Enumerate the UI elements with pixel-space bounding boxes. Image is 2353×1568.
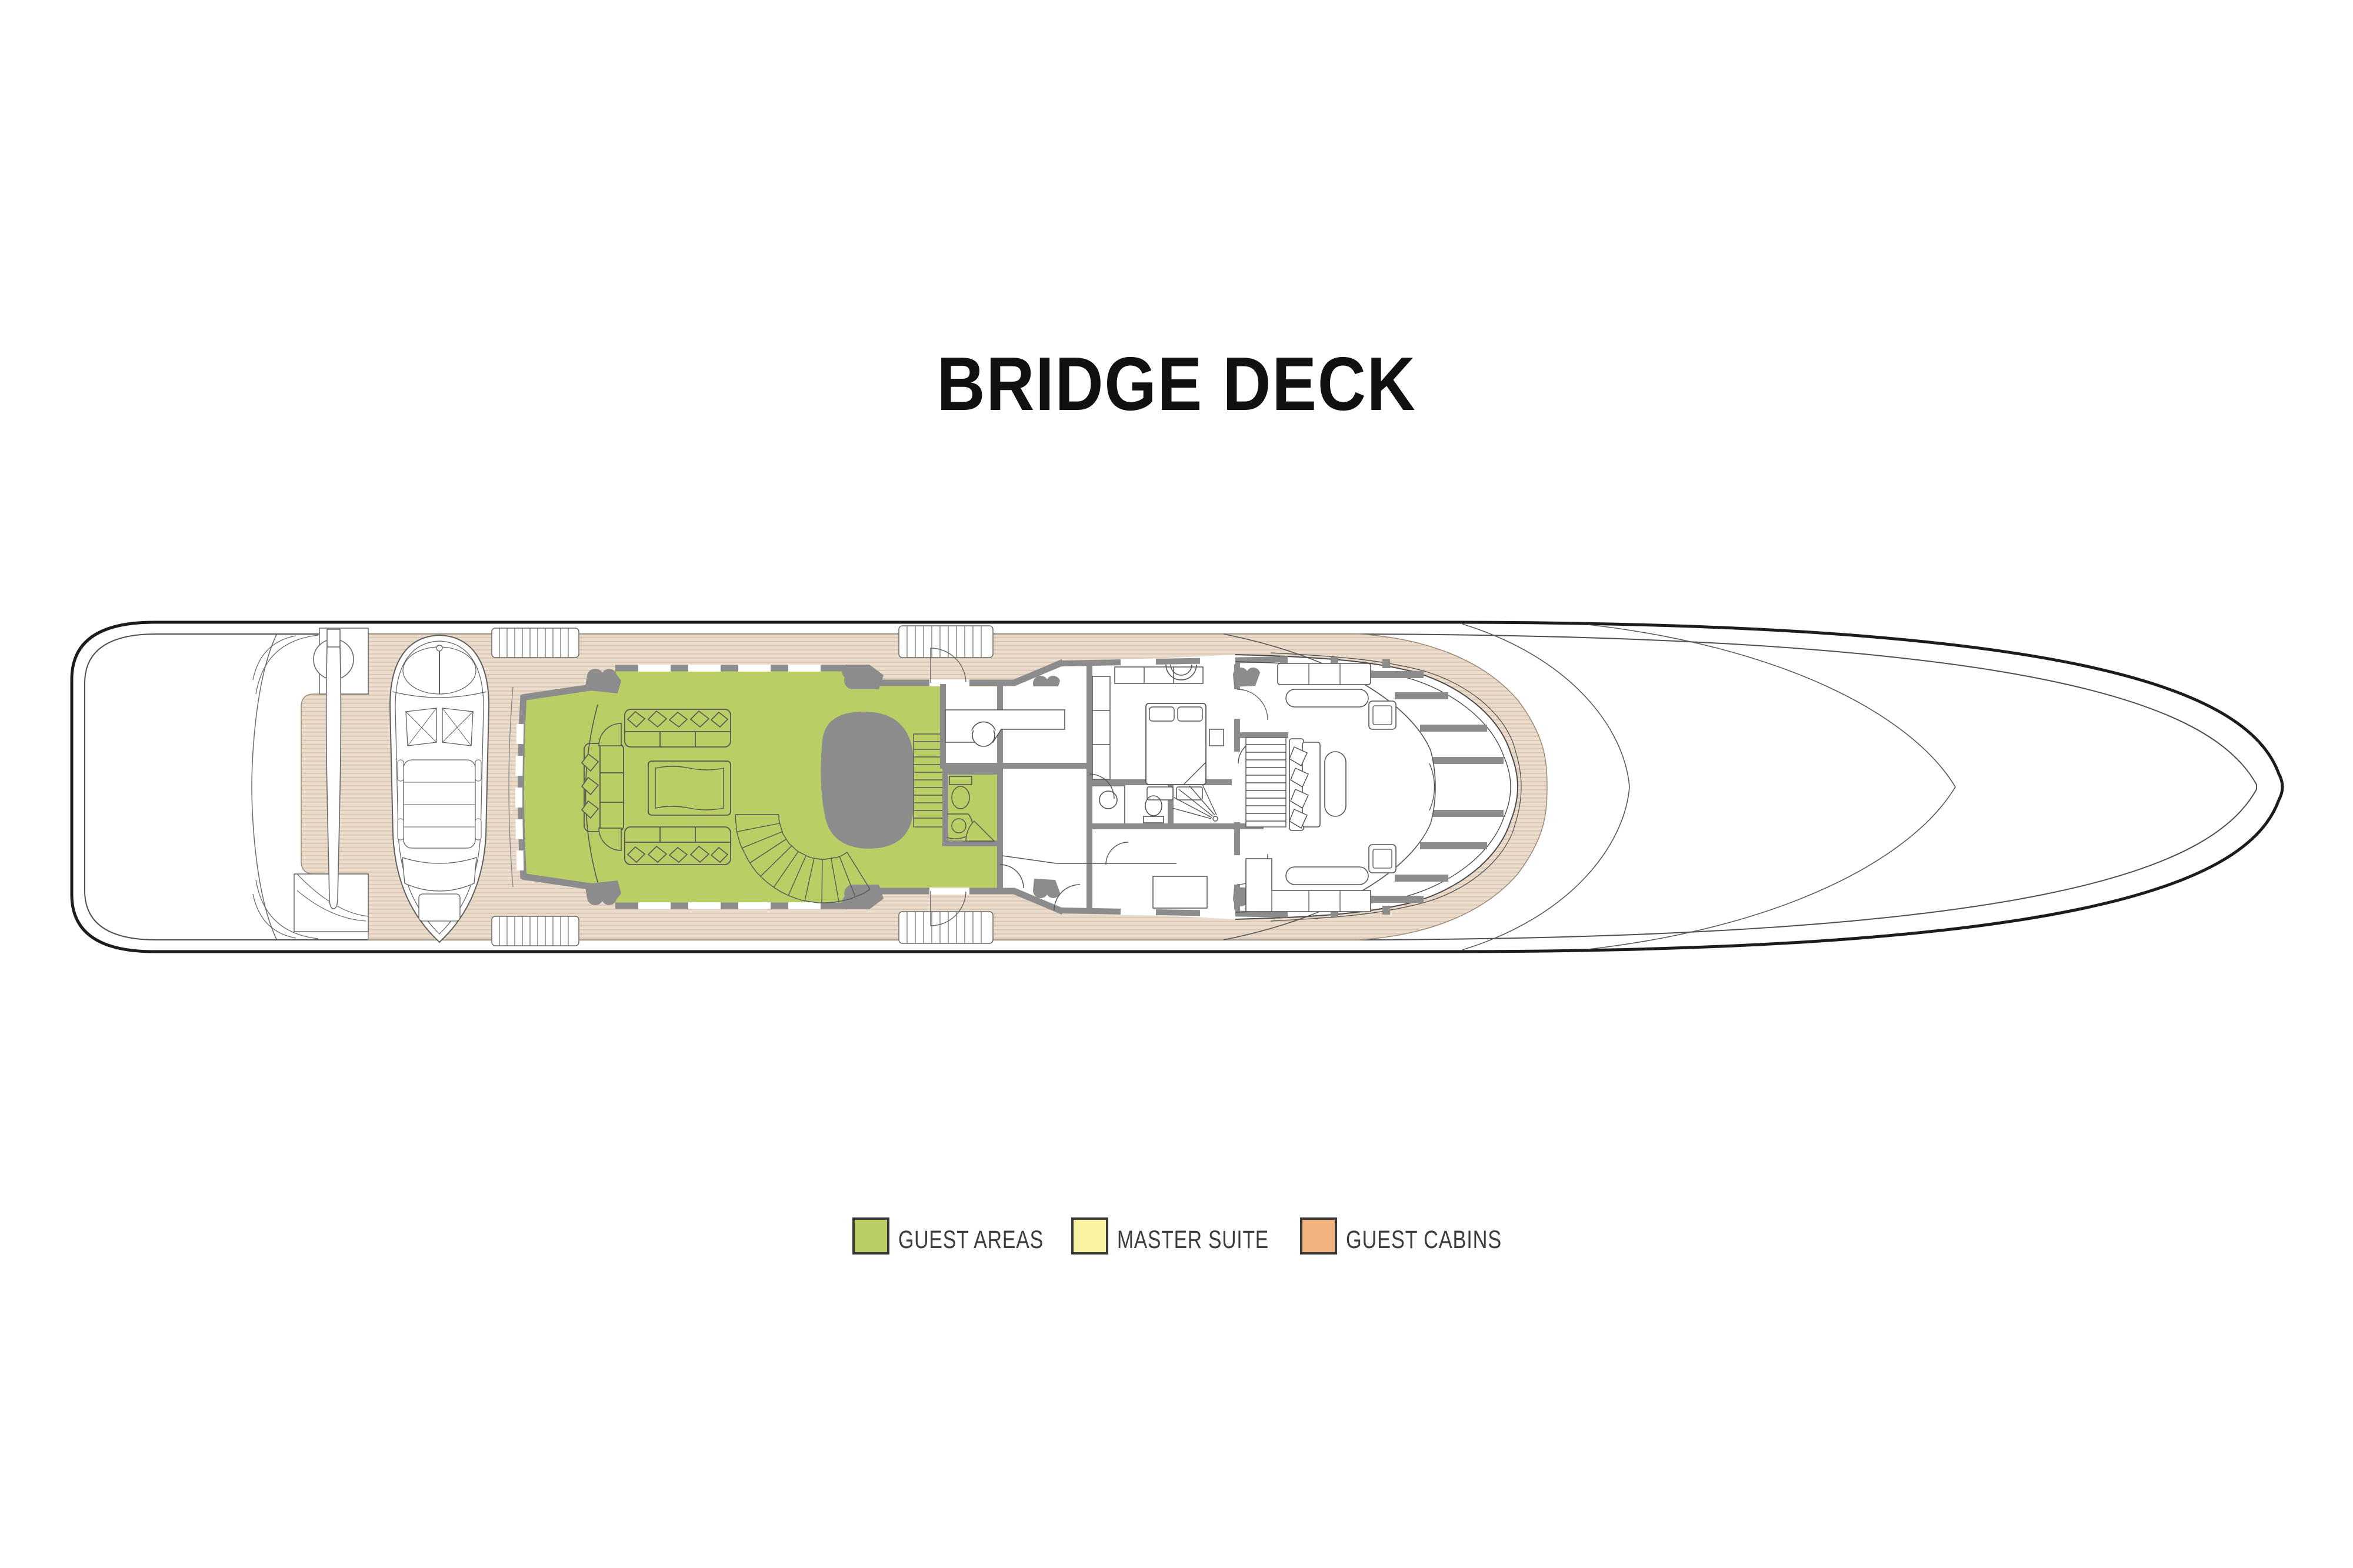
svg-text:GUEST CABINS: GUEST CABINS (1346, 1226, 1502, 1254)
svg-text:GUEST AREAS: GUEST AREAS (898, 1226, 1044, 1254)
svg-text:BRIDGE DECK: BRIDGE DECK (937, 342, 1417, 426)
svg-text:MASTER SUITE: MASTER SUITE (1117, 1226, 1269, 1254)
